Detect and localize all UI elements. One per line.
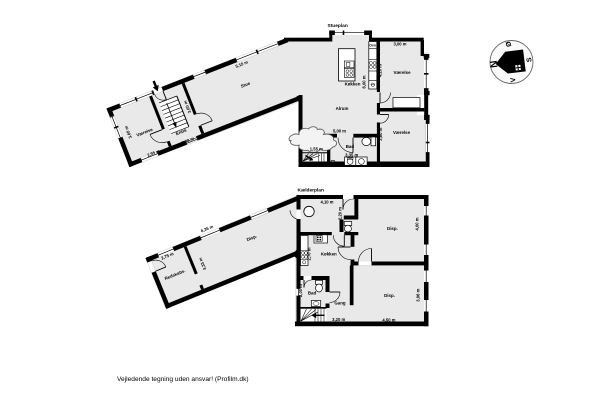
svg-text:3,96 m: 3,96 m [416,288,421,301]
svg-text:Vejledende tegning uden ansvar: Vejledende tegning uden ansvar! (Profilm… [117,376,249,383]
svg-text:Stueplan: Stueplan [328,23,348,29]
svg-text:N: N [489,60,501,69]
svg-text:3,00 m: 3,00 m [395,161,408,166]
svg-text:Disp.: Disp. [387,226,398,231]
svg-text:3,35 m: 3,35 m [345,153,358,158]
svg-text:4,10 m: 4,10 m [320,200,333,205]
svg-text:4,50 m: 4,50 m [382,317,395,322]
svg-text:2,20 m: 2,20 m [338,207,343,220]
svg-text:Bad: Bad [308,290,317,295]
svg-text:1,55 m: 1,55 m [310,147,323,152]
svg-text:Gang: Gang [334,300,346,305]
svg-text:3,00 m: 3,00 m [393,41,406,46]
svg-text:6,00 m: 6,00 m [361,75,366,88]
svg-text:Disp.: Disp. [384,293,395,298]
svg-text:Bad: Bad [346,144,355,149]
svg-text:3,20 m: 3,20 m [332,317,345,322]
svg-text:Kælderplan: Kælderplan [298,188,324,194]
svg-text:3,60 m: 3,60 m [378,127,383,140]
svg-text:Alrum: Alrum [336,106,349,111]
svg-text:Værelse: Værelse [393,70,411,75]
svg-text:5,00 m: 5,00 m [333,128,346,133]
svg-text:2,70 m: 2,70 m [307,247,312,260]
svg-text:4,20 m: 4,20 m [378,64,383,77]
svg-text:Køkken: Køkken [321,252,337,257]
svg-text:Ovn: Ovn [369,44,376,48]
svg-text:2,00 m: 2,00 m [298,284,303,297]
svg-text:4,00 m: 4,00 m [415,217,420,230]
svg-text:Køkken: Køkken [345,81,361,86]
svg-text:Værelse: Værelse [393,130,411,135]
